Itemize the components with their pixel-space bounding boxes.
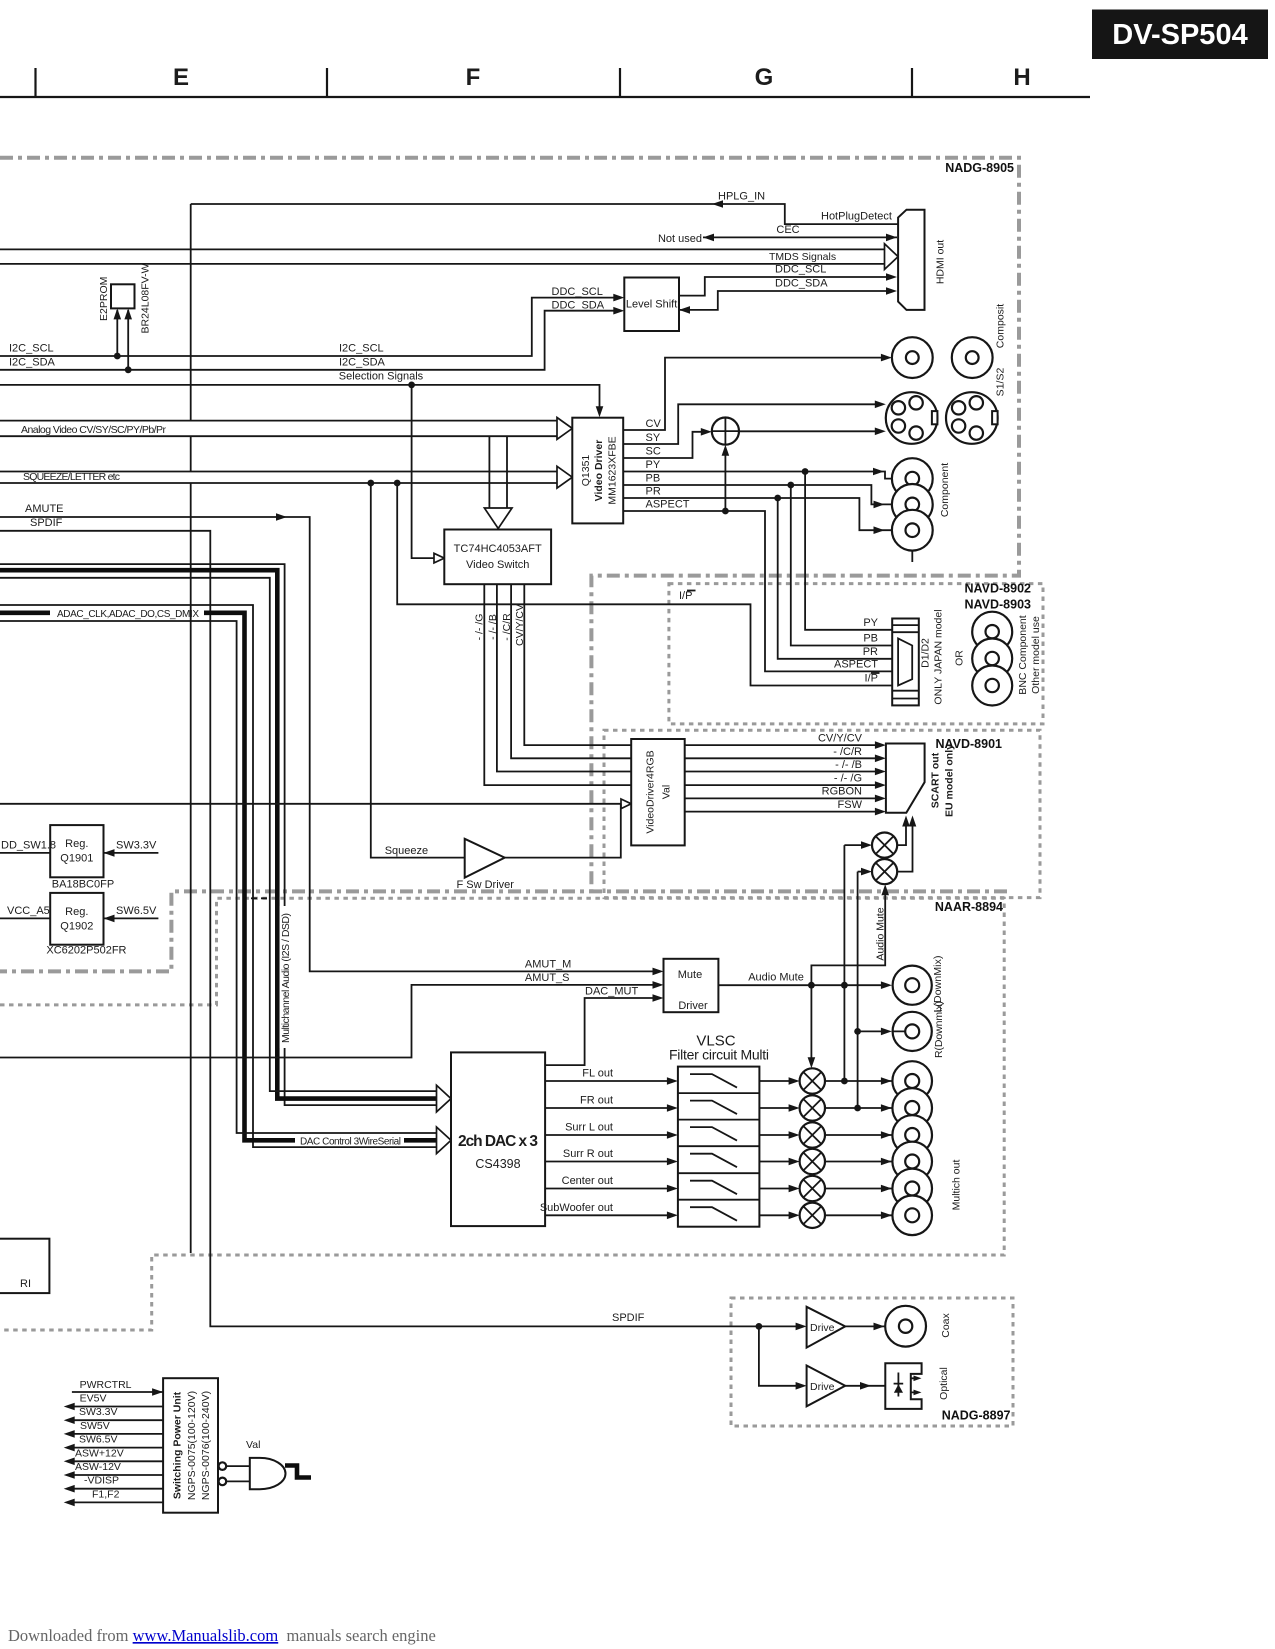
svg-text:Center out: Center out	[562, 1175, 613, 1187]
svg-text:Drive: Drive	[810, 1381, 835, 1393]
svg-text:RGBON: RGBON	[822, 786, 862, 798]
svg-text:CV/Y/CV: CV/Y/CV	[514, 604, 526, 646]
svg-text:Downloaded from www.Manualslib: Downloaded from www.Manualslib.com manua…	[8, 1626, 436, 1645]
svg-text:I2C_SCL: I2C_SCL	[339, 343, 384, 355]
svg-text:ASPECT: ASPECT	[646, 499, 690, 511]
svg-text:E2PROM: E2PROM	[98, 277, 110, 321]
svg-text:ONLY JAPAN model: ONLY JAPAN model	[933, 609, 945, 704]
svg-text:Drive: Drive	[810, 1322, 835, 1334]
svg-text:SW6.5V: SW6.5V	[116, 905, 157, 917]
svg-text:Reg.: Reg.	[65, 906, 88, 918]
svg-text:Video Driver: Video Driver	[593, 440, 605, 502]
svg-text:XC6202P502FR: XC6202P502FR	[46, 945, 126, 957]
svg-text:HPLG_IN: HPLG_IN	[718, 191, 765, 203]
svg-text:- /- /G: - /- /G	[834, 772, 862, 784]
svg-text:E: E	[173, 64, 189, 91]
svg-text:CEC: CEC	[776, 224, 799, 236]
svg-text:Analog Video CV/SY/SC/PY/Pb/Pr: Analog Video CV/SY/SC/PY/Pb/Pr	[21, 424, 167, 436]
svg-text:PR: PR	[646, 486, 661, 498]
svg-text:DAC Control 3WireSerial: DAC Control 3WireSerial	[300, 1136, 401, 1147]
svg-text:Multich out: Multich out	[951, 1160, 963, 1211]
svg-text:SubWoofer out: SubWoofer out	[540, 1202, 613, 1214]
svg-text:Multichannel Audio (I2S / DSD): Multichannel Audio (I2S / DSD)	[280, 913, 292, 1043]
svg-text:DV-SP504: DV-SP504	[1112, 19, 1247, 51]
svg-text:VCC_A5: VCC_A5	[7, 905, 50, 917]
svg-text:SW6.5V: SW6.5V	[79, 1434, 118, 1446]
svg-text:Driver: Driver	[678, 1000, 708, 1012]
svg-text:AMUTE: AMUTE	[25, 503, 64, 515]
svg-text:Audio Mute: Audio Mute	[875, 907, 887, 960]
svg-text:I/P: I/P	[679, 590, 692, 602]
svg-text:NADG-8897: NADG-8897	[942, 1409, 1011, 1423]
svg-text:NAAR-8894: NAAR-8894	[935, 900, 1003, 914]
svg-text:Coax: Coax	[940, 1312, 952, 1337]
svg-text:SQUEEZE/LETTER etc: SQUEEZE/LETTER etc	[23, 471, 120, 483]
svg-text:Val: Val	[661, 785, 673, 799]
svg-text:BNC Component: BNC Component	[1017, 615, 1029, 694]
svg-text:D1/D2: D1/D2	[920, 638, 932, 668]
svg-text:NAVD-8903: NAVD-8903	[965, 598, 1032, 612]
svg-text:HotPlugDetect: HotPlugDetect	[821, 211, 892, 223]
svg-text:- /- /B: - /- /B	[835, 759, 862, 771]
svg-text:I2C_SCL: I2C_SCL	[9, 343, 54, 355]
svg-text:ASW+12V: ASW+12V	[75, 1447, 124, 1459]
svg-text:Audio Mute: Audio Mute	[748, 972, 804, 984]
svg-text:AMUT_M: AMUT_M	[525, 959, 571, 971]
svg-text:NGPS-0075(100-120V): NGPS-0075(100-120V)	[186, 1391, 198, 1500]
svg-text:ASW-12V: ASW-12V	[75, 1461, 121, 1473]
svg-text:ADAC_CLK,ADAC_DO,CS_DMIX: ADAC_CLK,ADAC_DO,CS_DMIX	[57, 609, 199, 620]
svg-text:- /C/R: - /C/R	[501, 613, 513, 641]
svg-text:Video Switch: Video Switch	[466, 559, 529, 571]
svg-text:CS4398: CS4398	[475, 1157, 520, 1171]
svg-text:EU model only: EU model only	[944, 744, 956, 817]
svg-text:SW3.3V: SW3.3V	[116, 840, 157, 852]
svg-text:SW3.3V: SW3.3V	[79, 1406, 118, 1418]
svg-text:RI: RI	[20, 1278, 31, 1290]
svg-text:TMDS Signals: TMDS Signals	[769, 251, 836, 263]
svg-text:Other model use: Other model use	[1030, 616, 1042, 694]
svg-text:S1/S2: S1/S2	[995, 368, 1007, 397]
svg-text:SC: SC	[646, 446, 661, 458]
svg-text:H: H	[1013, 64, 1030, 91]
svg-text:Composit: Composit	[995, 304, 1007, 348]
svg-text:I/P: I/P	[865, 673, 878, 685]
svg-text:-VDISP: -VDISP	[84, 1475, 119, 1487]
svg-text:Mute: Mute	[678, 969, 702, 981]
svg-text:EV5V: EV5V	[80, 1393, 107, 1405]
svg-text:Val: Val	[246, 1439, 260, 1451]
svg-text:- /- /B: - /- /B	[487, 614, 499, 640]
svg-text:I2C_SDA: I2C_SDA	[9, 357, 56, 369]
svg-text:TC74HC4053AFT: TC74HC4053AFT	[454, 543, 542, 555]
svg-text:Q1351: Q1351	[580, 455, 592, 487]
svg-text:PY: PY	[863, 617, 878, 629]
svg-text:DD_SW1.8: DD_SW1.8	[1, 840, 56, 852]
svg-text:Reg.: Reg.	[65, 838, 88, 850]
svg-text:DDC_SDA: DDC_SDA	[552, 300, 605, 312]
svg-text:Filter circuit Multi: Filter circuit Multi	[669, 1047, 769, 1063]
svg-text:FR out: FR out	[580, 1095, 613, 1107]
svg-text:DDC_SCL: DDC_SCL	[552, 286, 603, 298]
svg-text:SPDIF: SPDIF	[30, 517, 63, 529]
svg-text:PY: PY	[646, 459, 661, 471]
svg-text:Switching Power Unit: Switching Power Unit	[172, 1391, 184, 1499]
svg-text:NAVD-8902: NAVD-8902	[965, 582, 1032, 596]
svg-text:2ch DAC x 3: 2ch DAC x 3	[458, 1133, 538, 1150]
svg-text:VideoDriver4RGB: VideoDriver4RGB	[645, 750, 657, 833]
svg-text:F Sw Driver: F Sw Driver	[457, 879, 515, 891]
svg-text:DAC_MUT: DAC_MUT	[585, 986, 638, 998]
svg-text:Squeeze: Squeeze	[385, 845, 428, 857]
svg-text:SW5V: SW5V	[80, 1420, 110, 1432]
svg-text:I2C_SDA: I2C_SDA	[339, 357, 386, 369]
svg-text:Optical: Optical	[938, 1367, 950, 1400]
svg-text:SY: SY	[646, 432, 661, 444]
svg-text:Not used: Not used	[658, 233, 702, 245]
svg-text:R(Downmix): R(Downmix)	[933, 1001, 945, 1058]
svg-text:SCART out: SCART out	[930, 752, 942, 808]
svg-text:FSW: FSW	[838, 799, 863, 811]
svg-text:CV/Y/CV: CV/Y/CV	[818, 733, 863, 745]
svg-text:OR: OR	[954, 650, 966, 666]
svg-text:BA18BC0FP: BA18BC0FP	[52, 879, 114, 891]
svg-text:NADG-8905: NADG-8905	[945, 161, 1014, 175]
svg-text:Component: Component	[939, 463, 951, 517]
svg-text:Surr R out: Surr R out	[563, 1148, 613, 1160]
svg-text:HDMI out: HDMI out	[935, 240, 947, 284]
svg-text:PB: PB	[863, 633, 878, 645]
svg-text:CV: CV	[646, 418, 662, 430]
svg-text:Surr L out: Surr L out	[565, 1122, 613, 1134]
svg-text:FL out: FL out	[582, 1068, 613, 1080]
svg-text:PR: PR	[863, 646, 878, 658]
svg-text:F: F	[466, 64, 481, 91]
svg-text:NGPS-0076(100-240V): NGPS-0076(100-240V)	[200, 1391, 212, 1500]
svg-text:Q1902: Q1902	[60, 921, 93, 933]
svg-text:PWRCTRL: PWRCTRL	[80, 1379, 132, 1391]
svg-text:Level Shift: Level Shift	[626, 299, 677, 311]
svg-text:AMUT_S: AMUT_S	[525, 972, 570, 984]
svg-text:PB: PB	[646, 473, 661, 485]
svg-text:Q1901: Q1901	[60, 853, 93, 865]
svg-text:- /C/R: - /C/R	[833, 746, 862, 758]
svg-text:MM1623XFBE: MM1623XFBE	[607, 436, 619, 504]
svg-text:- /- /G: - /- /G	[474, 614, 486, 641]
svg-text:BR24L08FV-W: BR24L08FV-W	[139, 263, 151, 333]
svg-text:DDC_SDA: DDC_SDA	[775, 278, 828, 290]
svg-text:Selection Signals: Selection Signals	[339, 371, 424, 383]
svg-text:F1,F2: F1,F2	[92, 1488, 120, 1500]
svg-text:G: G	[755, 64, 774, 91]
svg-text:DDC_SCL: DDC_SCL	[775, 264, 826, 276]
svg-text:SPDIF: SPDIF	[612, 1312, 645, 1324]
svg-text:ASPECT: ASPECT	[834, 658, 878, 670]
